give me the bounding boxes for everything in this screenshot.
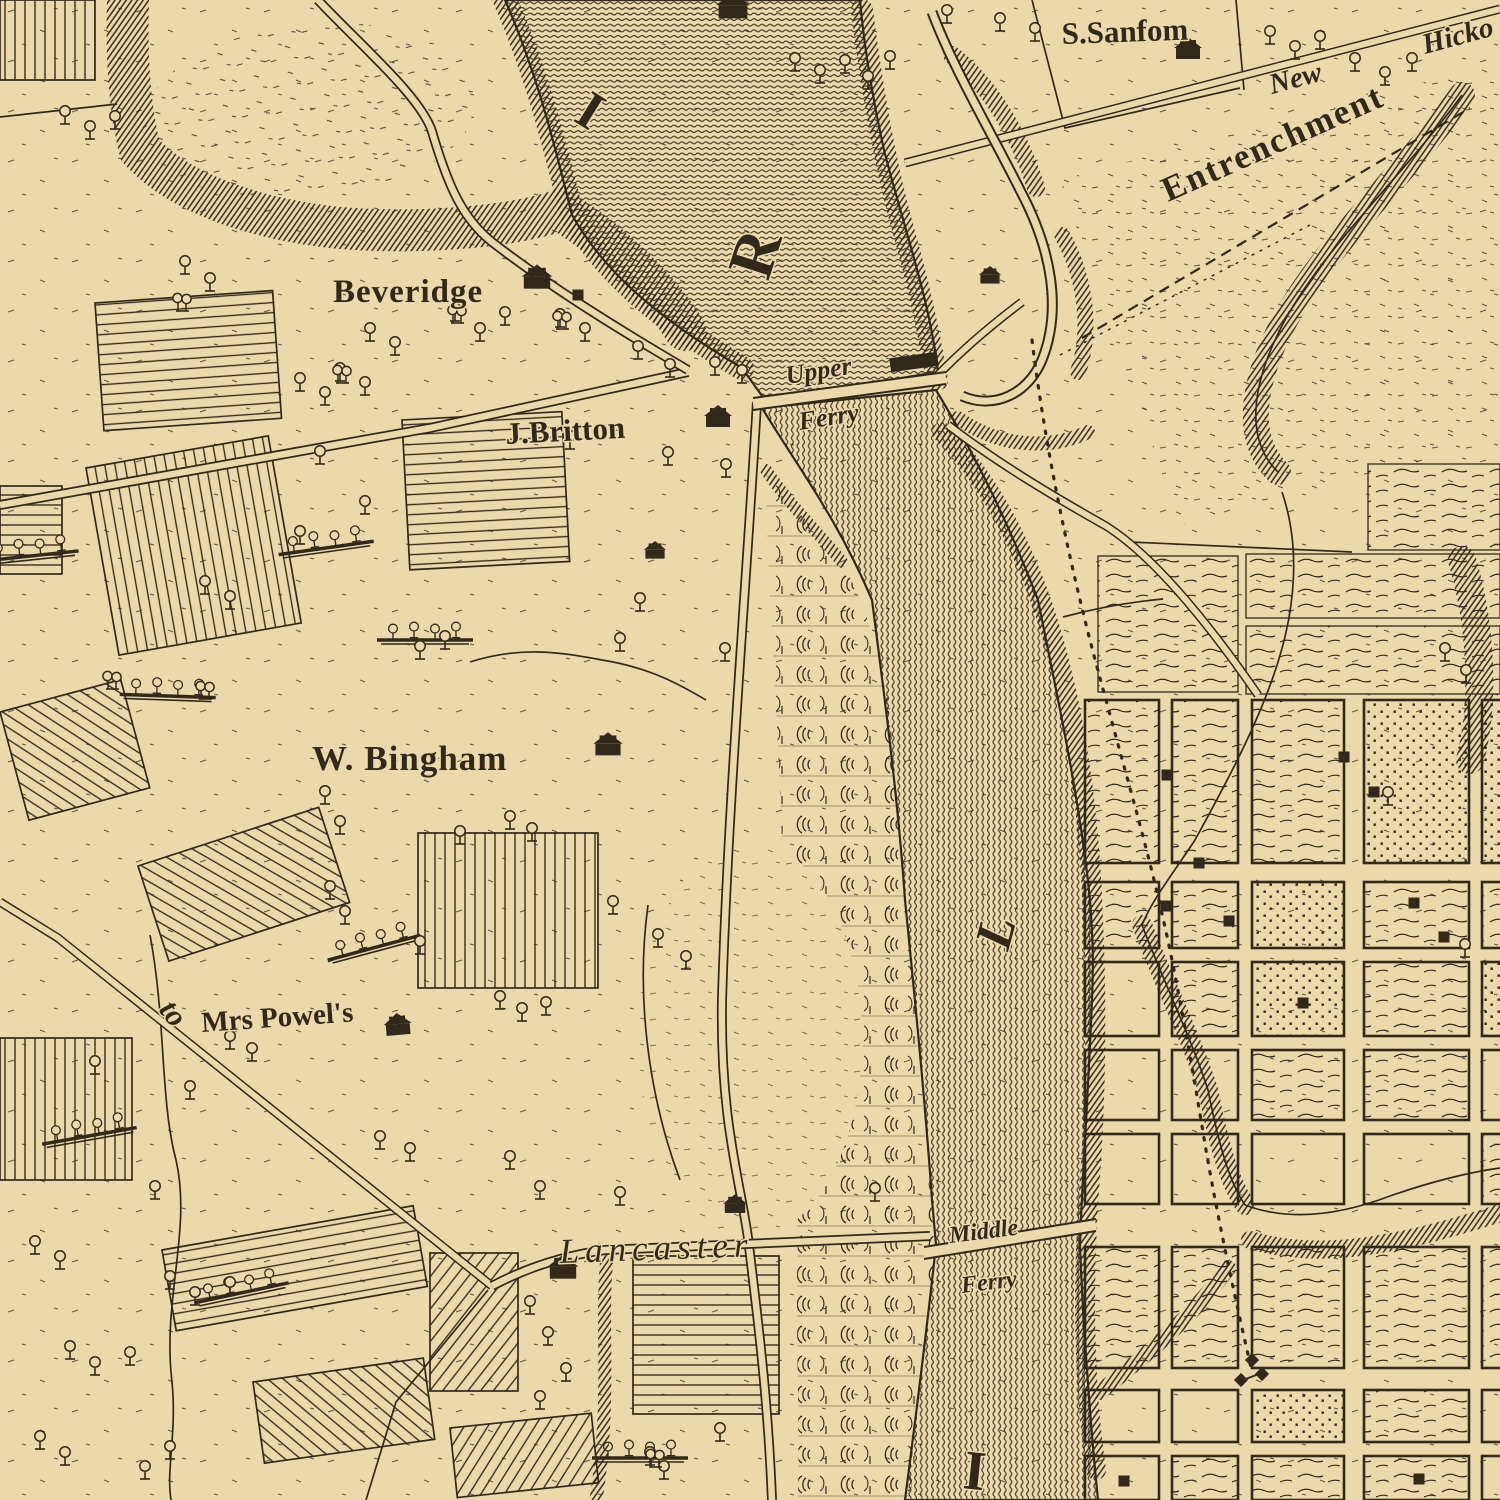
city-block bbox=[1252, 882, 1344, 948]
building-square bbox=[1439, 932, 1450, 943]
building-square bbox=[1414, 1474, 1425, 1485]
building-square bbox=[1339, 752, 1350, 763]
label-j-britton: J.Britton bbox=[505, 410, 626, 451]
city-block bbox=[1364, 1390, 1469, 1442]
city-block bbox=[1364, 1247, 1469, 1368]
field-plot bbox=[418, 833, 598, 988]
building-square bbox=[1161, 901, 1172, 912]
city-block bbox=[1172, 882, 1238, 948]
field-plot bbox=[0, 0, 95, 80]
city-block bbox=[1364, 1050, 1469, 1120]
building-square bbox=[1224, 916, 1235, 927]
label-lancaster: Lancaster bbox=[558, 1225, 754, 1271]
city-block bbox=[1252, 1390, 1344, 1442]
city-block bbox=[1482, 882, 1500, 948]
city-block bbox=[1364, 882, 1469, 948]
city-block bbox=[1482, 1247, 1500, 1368]
house-icon bbox=[716, 0, 750, 18]
city-block bbox=[1364, 700, 1469, 863]
mudflat-speckle bbox=[638, 842, 862, 1238]
building-square bbox=[573, 290, 584, 301]
field-plot bbox=[450, 1413, 599, 1497]
city-block bbox=[1252, 1456, 1344, 1500]
city-block bbox=[1172, 1456, 1238, 1500]
field-plot bbox=[0, 1038, 132, 1180]
city-block bbox=[1252, 1050, 1344, 1120]
label-w-bingham: W. Bingham bbox=[312, 739, 507, 778]
city-block bbox=[1252, 1247, 1344, 1368]
building-square bbox=[1194, 858, 1205, 869]
city-block bbox=[1252, 700, 1344, 863]
meadow-plot bbox=[1368, 464, 1500, 550]
building-square bbox=[1298, 998, 1309, 1009]
building-square bbox=[1369, 787, 1380, 798]
building-square bbox=[1119, 1476, 1130, 1487]
building-square bbox=[1409, 898, 1420, 909]
city-block bbox=[1364, 962, 1469, 1036]
label-beveridge: Beveridge bbox=[333, 274, 483, 310]
label-s-sansom: S.Sanfom bbox=[1061, 12, 1189, 51]
city-block bbox=[1172, 700, 1238, 863]
city-block bbox=[1482, 962, 1500, 1036]
building-square bbox=[1162, 770, 1173, 781]
map-canvas: Beveridge J.Britton Upper Ferry W. Bingh… bbox=[0, 0, 1500, 1500]
